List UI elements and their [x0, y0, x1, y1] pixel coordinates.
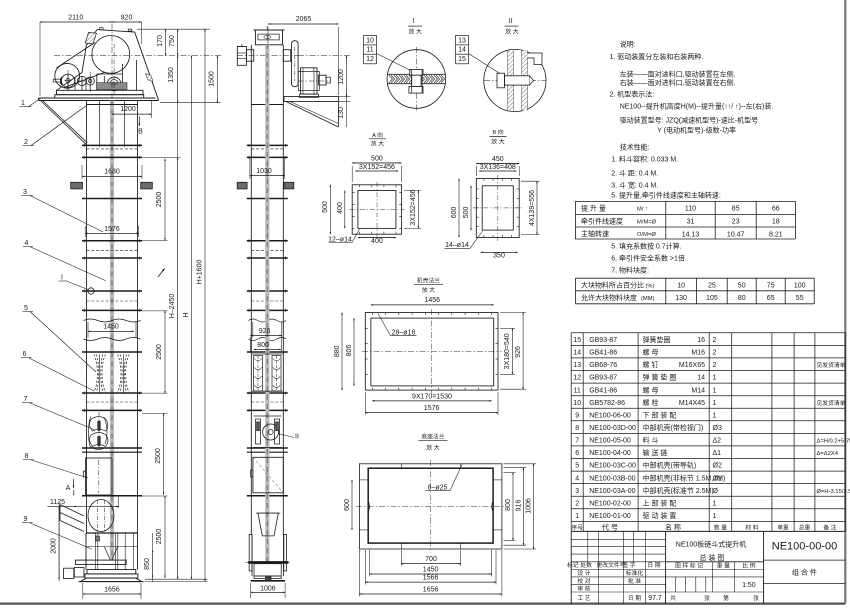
svg-text:1030: 1030: [256, 168, 272, 175]
svg-text:2: 2: [575, 500, 579, 507]
svg-text:2000: 2000: [50, 538, 57, 554]
svg-text:弹 簧 垫 圈: 弹 簧 垫 圈: [643, 373, 677, 382]
svg-text:Ø2: Ø2: [713, 463, 722, 470]
svg-text:图 样 标 记: 图 样 标 记: [675, 562, 703, 570]
svg-text:5. 提升量,牵引件线速度和主轴转速:: 5. 提升量,牵引件线速度和主轴转速:: [611, 191, 721, 200]
svg-text:350: 350: [493, 253, 505, 260]
svg-text:15: 15: [458, 56, 466, 63]
svg-text:3: 3: [23, 189, 27, 196]
svg-text:6: 6: [23, 351, 27, 358]
svg-text:II: II: [295, 434, 299, 441]
svg-text:Ø=H-3.15/2.5: Ø=H-3.15/2.5: [817, 489, 850, 495]
svg-text:7: 7: [575, 438, 579, 445]
svg-text:5. 填充系数按 0.7计算.: 5. 填充系数按 0.7计算.: [611, 242, 681, 251]
svg-text:NE100-03B-00: NE100-03B-00: [589, 475, 635, 482]
svg-text:5: 5: [24, 305, 28, 312]
svg-text:1200: 1200: [338, 69, 345, 85]
svg-text:8: 8: [25, 453, 29, 460]
svg-text:签 字: 签 字: [622, 561, 635, 569]
svg-text:11: 11: [366, 47, 373, 54]
svg-text:1: 1: [713, 500, 717, 507]
svg-text:校 对: 校 对: [577, 577, 590, 585]
svg-text:600: 600: [451, 206, 458, 218]
svg-text:螺 钉: 螺 钉: [643, 360, 659, 369]
svg-text:更改文件号: 更改文件号: [597, 561, 626, 569]
svg-text:底座法兰: 底座法兰: [421, 433, 444, 441]
svg-text:H–2450: H–2450: [169, 294, 176, 319]
svg-text:50: 50: [738, 282, 746, 289]
svg-text:80: 80: [738, 295, 746, 302]
svg-text:见发货清单: 见发货清单: [817, 361, 846, 369]
svg-text:1450: 1450: [423, 567, 439, 574]
svg-text:1576: 1576: [424, 405, 440, 412]
svg-text:放 大: 放 大: [491, 138, 504, 146]
svg-text:2: 2: [713, 350, 717, 357]
svg-text:1:50: 1:50: [742, 582, 756, 589]
svg-text:I: I: [61, 275, 63, 282]
svg-text:驱 动 装 置: 驱 动 装 置: [643, 511, 677, 520]
svg-text:400: 400: [337, 202, 344, 214]
svg-text:3X180=540: 3X180=540: [504, 333, 511, 369]
svg-text:66: 66: [772, 206, 780, 213]
svg-text:3X136=408: 3X136=408: [480, 164, 516, 171]
svg-text:2110: 2110: [68, 15, 83, 22]
svg-text:A: A: [66, 485, 71, 492]
svg-text:850: 850: [144, 558, 151, 570]
svg-text:M16: M16: [691, 350, 705, 357]
svg-text:9: 9: [575, 412, 579, 419]
svg-text:750: 750: [169, 35, 176, 47]
svg-text:审 核: 审 核: [577, 584, 590, 592]
svg-text:张: 张: [704, 594, 710, 602]
svg-text:10: 10: [677, 282, 685, 289]
svg-text:400: 400: [371, 238, 383, 245]
svg-text:料 斗: 料 斗: [643, 436, 659, 445]
svg-text:500: 500: [322, 201, 329, 213]
svg-text:总 装 图: 总 装 图: [700, 553, 725, 562]
svg-text:M14: M14: [691, 387, 705, 394]
svg-text:25: 25: [708, 282, 716, 289]
svg-text:926: 926: [259, 328, 271, 335]
svg-text:技术性能:: 技术性能:: [620, 143, 650, 152]
svg-text:23: 23: [732, 219, 740, 226]
svg-text:12: 12: [573, 375, 581, 382]
svg-text:NE100-03C-00: NE100-03C-00: [589, 463, 636, 470]
svg-text:2065: 2065: [296, 16, 312, 23]
svg-text:Y (电动机型号)-级数-功率: Y (电动机型号)-级数-功率: [657, 126, 736, 135]
svg-text:880: 880: [334, 345, 341, 357]
svg-text:800: 800: [257, 342, 269, 349]
svg-text:(%): (%): [646, 283, 655, 289]
svg-text:备 注: 备 注: [823, 524, 836, 532]
svg-text:9: 9: [24, 516, 28, 523]
svg-text:NE100-01-00: NE100-01-00: [589, 513, 631, 520]
svg-text:12: 12: [366, 56, 374, 63]
svg-text:55: 55: [796, 295, 804, 302]
svg-text:2: 2: [713, 362, 717, 369]
svg-text:NE100-03D-00: NE100-03D-00: [589, 425, 636, 432]
svg-text:2: 2: [713, 337, 717, 344]
svg-text:1456: 1456: [425, 297, 441, 304]
svg-text:920: 920: [121, 15, 133, 22]
svg-text:1: 1: [713, 387, 717, 394]
svg-text:下 部 装 配: 下 部 装 配: [643, 410, 677, 419]
svg-text:13: 13: [573, 362, 581, 369]
svg-text:2500: 2500: [156, 344, 163, 360]
svg-text:螺 栓: 螺 栓: [643, 398, 659, 407]
svg-text:H+1600: H+1600: [196, 260, 203, 285]
svg-text:3. 斗 宽: 0.4 M.: 3. 斗 宽: 0.4 M.: [611, 180, 658, 189]
svg-text:7: 7: [24, 396, 28, 403]
svg-text:14: 14: [573, 350, 581, 357]
svg-text:工 艺: 工 艺: [577, 594, 590, 602]
svg-text:NE100-05-00: NE100-05-00: [589, 438, 631, 445]
svg-text:5: 5: [575, 463, 579, 470]
svg-text:1. 驱动装置分左装和右装两种.: 1. 驱动装置分左装和右装两种.: [610, 52, 704, 61]
svg-text:说明:: 说明:: [620, 40, 636, 49]
svg-text:2. 斗 距: 0.4 M.: 2. 斗 距: 0.4 M.: [611, 169, 658, 177]
svg-text:标记 处数: 标记 处数: [567, 561, 592, 569]
svg-text:I: I: [413, 18, 415, 25]
svg-text:M16X65: M16X65: [679, 362, 705, 369]
svg-text:数 量: 数 量: [714, 524, 727, 532]
svg-text:450: 450: [492, 156, 504, 163]
svg-text:材 料: 材 料: [745, 524, 758, 532]
svg-text:右装——面对进料口,驱动装置在右侧.: 右装——面对进料口,驱动装置在右侧.: [620, 78, 736, 87]
svg-text:B: B: [138, 129, 143, 136]
svg-text:NE100-00-00: NE100-00-00: [772, 541, 837, 553]
svg-text:1. 料斗容积: 0.033 M.: 1. 料斗容积: 0.033 M.: [611, 155, 678, 164]
svg-text:B 向: B 向: [492, 128, 503, 136]
svg-text:170: 170: [157, 35, 164, 47]
svg-text:机壳法兰: 机壳法兰: [417, 277, 440, 285]
svg-text:主轴转速: 主轴转速: [581, 229, 609, 238]
svg-text:8: 8: [575, 425, 579, 432]
svg-text:1006: 1006: [525, 498, 532, 514]
svg-text:NE100-02-00: NE100-02-00: [589, 500, 631, 507]
svg-text:名 称: 名 称: [665, 523, 681, 532]
svg-text:日 期: 日 期: [628, 595, 641, 602]
svg-text:大块物料所占百分比: 大块物料所占百分比: [581, 280, 644, 289]
svg-text:输 送 链: 输 送 链: [643, 448, 668, 457]
svg-text:中部机壳(带导轨): 中部机壳(带导轨): [643, 461, 697, 470]
svg-text:11: 11: [574, 387, 581, 394]
svg-text:螺 母: 螺 母: [643, 348, 659, 357]
svg-text:14.13: 14.13: [682, 231, 700, 238]
svg-text:1: 1: [21, 100, 25, 107]
svg-text:放 大: 放 大: [505, 28, 518, 36]
svg-text:500: 500: [463, 206, 470, 218]
svg-text:3: 3: [575, 488, 579, 495]
svg-text:10.47: 10.47: [727, 231, 745, 238]
svg-text:65: 65: [767, 295, 775, 302]
svg-text:A 向: A 向: [372, 131, 383, 139]
svg-text:NE100-04-00: NE100-04-00: [589, 450, 631, 457]
svg-text:110: 110: [685, 206, 696, 213]
svg-text:设 计: 设 计: [577, 569, 590, 577]
svg-text:弹簧垫圈: 弹簧垫圈: [643, 335, 671, 344]
svg-text:100: 100: [794, 282, 806, 289]
svg-text:上 部 装 配: 上 部 装 配: [643, 498, 677, 507]
svg-text:GB93-87: GB93-87: [589, 375, 617, 382]
svg-text:7. 物料块度:: 7. 物料块度:: [611, 266, 649, 275]
svg-text:M14X45: M14X45: [679, 400, 705, 407]
svg-text:牵引件线速度: 牵引件线速度: [581, 216, 623, 225]
svg-text:97.7: 97.7: [648, 595, 662, 602]
svg-text:NE100-03A-00: NE100-03A-00: [589, 488, 635, 495]
svg-text:单重: 单重: [777, 524, 789, 532]
svg-text:NE100-06-00: NE100-06-00: [589, 412, 631, 419]
svg-text:张: 张: [753, 594, 759, 602]
svg-text:M/M=Ø: M/M=Ø: [637, 219, 657, 225]
svg-text:O/M=Ø: O/M=Ø: [637, 232, 656, 238]
svg-text:14: 14: [697, 375, 705, 382]
svg-text:1656: 1656: [423, 587, 439, 594]
svg-text:1: 1: [713, 412, 717, 419]
svg-text:Δ1: Δ1: [713, 450, 722, 457]
svg-text:NE100板链斗式提升机: NE100板链斗式提升机: [676, 540, 746, 549]
svg-text:放 大: 放 大: [409, 28, 422, 36]
svg-text:18: 18: [772, 219, 780, 226]
svg-text:中部机壳(标准节 2.5M): 中部机壳(标准节 2.5M): [643, 486, 714, 495]
svg-text:H: H: [183, 312, 190, 317]
svg-text:GB41-86: GB41-86: [589, 350, 617, 357]
svg-text:允许大块物料块度: 允许大块物料块度: [581, 293, 637, 302]
svg-text:4: 4: [25, 240, 29, 247]
svg-text:M/ ↑: M/ ↑: [637, 207, 648, 213]
svg-text:500: 500: [371, 155, 383, 162]
svg-text:6: 6: [575, 450, 579, 457]
svg-text:13: 13: [458, 37, 466, 44]
svg-text:1006: 1006: [260, 585, 276, 592]
svg-text:序号: 序号: [571, 524, 583, 532]
svg-text:1576: 1576: [104, 226, 120, 233]
svg-text:75: 75: [767, 282, 775, 289]
svg-text:16: 16: [697, 337, 705, 344]
svg-text:提 升 量: 提 升 量: [581, 204, 606, 213]
svg-text:中部机壳(带检视门): 中部机壳(带检视门): [643, 423, 704, 432]
svg-text:NE100--提升机高度H(M)--提升量(↑↑/ ↑)--: NE100--提升机高度H(M)--提升量(↑↑/ ↑)--左(右)装.: [620, 101, 774, 110]
svg-text:2500: 2500: [156, 192, 163, 208]
svg-text:2500: 2500: [155, 448, 162, 464]
svg-text:组 合 件: 组 合 件: [792, 568, 817, 577]
svg-text:(MM): (MM): [641, 296, 655, 302]
svg-text:放 大: 放 大: [426, 444, 439, 452]
svg-text:放 大: 放 大: [371, 140, 384, 148]
svg-text:105: 105: [706, 295, 718, 302]
svg-text:1566: 1566: [423, 575, 439, 582]
svg-text:总重: 总重: [799, 524, 811, 532]
svg-text:放 大: 放 大: [422, 286, 435, 294]
svg-text:Ø: Ø: [713, 488, 719, 495]
svg-text:1: 1: [713, 375, 717, 382]
svg-text:Ø1: Ø1: [713, 475, 722, 482]
svg-text:10: 10: [366, 37, 374, 44]
svg-text:见发货清单: 见发货清单: [817, 399, 846, 407]
svg-text:1500: 1500: [209, 71, 216, 87]
svg-text:2. 机型表示法:: 2. 机型表示法:: [610, 90, 655, 99]
svg-text:15: 15: [573, 337, 581, 344]
svg-text:螺 母: 螺 母: [643, 385, 659, 394]
svg-text:第: 第: [723, 594, 729, 602]
svg-text:Δ2: Δ2: [713, 438, 722, 445]
svg-text:4: 4: [575, 475, 579, 482]
svg-text:1: 1: [575, 513, 579, 520]
svg-text:1656: 1656: [104, 587, 120, 594]
svg-text:600: 600: [344, 499, 351, 511]
svg-text:日 期: 日 期: [647, 562, 660, 569]
svg-text:130: 130: [675, 295, 687, 302]
svg-text:31: 31: [687, 219, 695, 226]
svg-text:Δ=H/0.2+5.75: Δ=H/0.2+5.75: [817, 439, 850, 445]
svg-text:Δ=Δ2X4: Δ=Δ2X4: [817, 451, 839, 457]
svg-text:重 量: 重 量: [717, 562, 730, 570]
svg-text:4X139=556: 4X139=556: [529, 190, 536, 226]
svg-text:3X152=456: 3X152=456: [359, 164, 395, 171]
svg-text:II: II: [509, 18, 513, 25]
svg-text:1350: 1350: [168, 67, 175, 83]
svg-text:14: 14: [458, 47, 466, 54]
svg-text:批 准: 批 准: [628, 577, 641, 585]
svg-text:代 号: 代 号: [602, 523, 618, 532]
svg-text:驱动装置型号: JZQ(减速机型号)-速比-机型号: 驱动装置型号: JZQ(减速机型号)-速比-机型号: [620, 115, 758, 124]
svg-text:9X170=1530: 9X170=1530: [412, 393, 452, 400]
svg-text:130: 130: [338, 107, 345, 119]
svg-text:1450: 1450: [103, 324, 119, 331]
svg-text:1: 1: [713, 513, 717, 520]
svg-text:Ø3: Ø3: [713, 425, 722, 432]
svg-text:926: 926: [515, 346, 522, 358]
svg-text:6. 牵引件安全系数 >1倍.: 6. 牵引件安全系数 >1倍.: [611, 254, 687, 263]
svg-text:10: 10: [573, 400, 581, 407]
svg-text:2: 2: [24, 139, 28, 146]
svg-text:共: 共: [670, 594, 676, 602]
svg-text:标准化: 标准化: [626, 569, 644, 577]
svg-text:左装——面对进料口,驱动装置在左侧.: 左装——面对进料口,驱动装置在左侧.: [620, 69, 736, 78]
svg-text:1680: 1680: [104, 169, 120, 176]
svg-text:806: 806: [346, 345, 353, 357]
svg-text:GB41-86: GB41-86: [589, 387, 617, 394]
svg-text:700: 700: [425, 556, 437, 563]
svg-text:GB5782-86: GB5782-86: [589, 400, 625, 407]
svg-text:800: 800: [505, 499, 512, 511]
svg-text:3X152=456: 3X152=456: [410, 189, 417, 225]
svg-text:916: 916: [515, 500, 522, 512]
svg-text:GB68-76: GB68-76: [589, 362, 617, 369]
svg-text:2500: 2500: [156, 529, 163, 545]
svg-text:8.21: 8.21: [769, 231, 783, 238]
svg-text:1: 1: [713, 400, 717, 407]
svg-text:GB93-87: GB93-87: [589, 337, 617, 344]
svg-text:1200: 1200: [120, 106, 136, 113]
svg-text:比 例: 比 例: [742, 562, 755, 570]
svg-text:85: 85: [732, 206, 740, 213]
svg-text:1125: 1125: [50, 499, 65, 506]
